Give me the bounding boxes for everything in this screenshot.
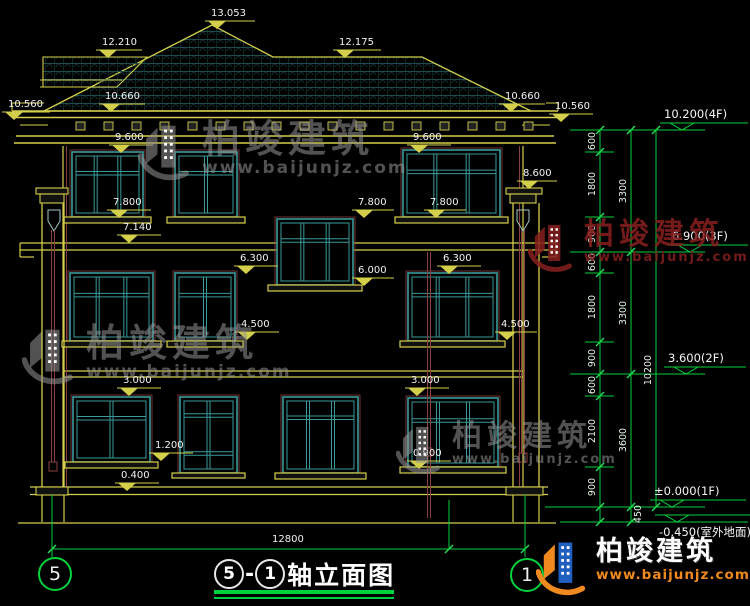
- watermark: 柏竣建筑 www.baijunjz.com: [396, 422, 617, 475]
- dimension-label: 600: [585, 119, 599, 163]
- watermark-text: 柏竣建筑: [202, 120, 408, 158]
- elevation-marker-label: 10.660: [505, 91, 540, 102]
- building-icon: [536, 537, 592, 596]
- dimension-label: 600: [585, 363, 599, 407]
- elevation-marker-label: 10.560: [8, 99, 43, 110]
- elevation-marker-label: 6.300: [240, 253, 269, 264]
- elevation-marker-label: 3.000: [411, 375, 440, 386]
- watermark: 柏竣建筑 www.baijunjz.com: [528, 220, 749, 273]
- watermark-url: www.baijunjz.com: [202, 158, 408, 178]
- watermark-url: www.baijunjz.com: [584, 250, 749, 265]
- elevation-marker-label: 13.053: [211, 8, 246, 19]
- title-text: 轴立面图: [287, 556, 395, 592]
- overall-width-dimension: 12800: [272, 534, 304, 545]
- cad-elevation-screenshot: 13.05312.21012.17510.56010.66010.66010.5…: [0, 0, 750, 606]
- title-axis-circle-1: 1: [255, 559, 285, 589]
- logo-name: 柏竣建筑: [596, 537, 750, 567]
- elevation-marker-label: 10.660: [105, 91, 140, 102]
- axis-bubble-5: 5: [38, 557, 72, 591]
- elevation-marker-label: 12.210: [102, 37, 137, 48]
- elevation-marker-label: 1.200: [155, 440, 184, 451]
- building-icon: [138, 120, 196, 181]
- dimension-label: 450: [631, 492, 645, 536]
- watermark-url: www.baijunjz.com: [452, 452, 617, 467]
- title-underline-thick: [214, 590, 394, 594]
- floor-level-label: 3.600(2F): [668, 352, 724, 364]
- dimension-label: 1800: [585, 162, 599, 206]
- elevation-marker-label: 7.800: [358, 197, 387, 208]
- watermark-text: 柏竣建筑: [86, 324, 292, 362]
- elevation-marker-label: 8.600: [523, 168, 552, 179]
- floor-level-label: ±0.000(1F): [654, 485, 719, 497]
- title-dash: -: [245, 562, 254, 587]
- building-icon: [528, 220, 578, 273]
- elevation-marker-label: 0.400: [121, 470, 150, 481]
- floor-level-label: 10.200(4F): [664, 108, 727, 120]
- watermark: 柏竣建筑 www.baijunjz.com: [138, 120, 408, 181]
- dimension-label: 1800: [585, 285, 599, 329]
- dimension-label: 10200: [641, 348, 655, 392]
- elevation-marker-label: 7.800: [430, 197, 459, 208]
- baijun-building-icon: [536, 537, 592, 600]
- elevation-marker-label: 7.800: [113, 197, 142, 208]
- elevation-marker-label: 6.300: [443, 253, 472, 264]
- title-axis-circle-5: 5: [214, 559, 244, 589]
- dimension-label: 3600: [616, 418, 630, 462]
- watermark-text: 柏竣建筑: [584, 220, 749, 250]
- watermark: 柏竣建筑 www.baijunjz.com: [22, 324, 292, 385]
- building-icon: [396, 422, 446, 475]
- watermark-url: www.baijunjz.com: [86, 362, 292, 382]
- dimension-label: 3300: [616, 291, 630, 335]
- title-underline-thin: [214, 597, 394, 599]
- elevation-marker-label: 6.000: [358, 265, 387, 276]
- elevation-marker-label: 12.175: [339, 37, 374, 48]
- building-icon: [22, 324, 80, 385]
- elevation-marker-label: 10.560: [555, 101, 590, 112]
- elevation-marker-label: 4.500: [501, 319, 530, 330]
- baijun-logo: 柏竣建筑 www.baijunjz.com: [536, 537, 750, 600]
- elevation-marker-label: 9.600: [413, 132, 442, 143]
- drawing-title: 5 - 1 轴立面图: [214, 556, 395, 592]
- elevation-marker-label: 7.140: [123, 222, 152, 233]
- dimension-label: 3300: [616, 169, 630, 213]
- watermark-text: 柏竣建筑: [452, 422, 617, 452]
- logo-url: www.baijunjz.com: [596, 567, 750, 583]
